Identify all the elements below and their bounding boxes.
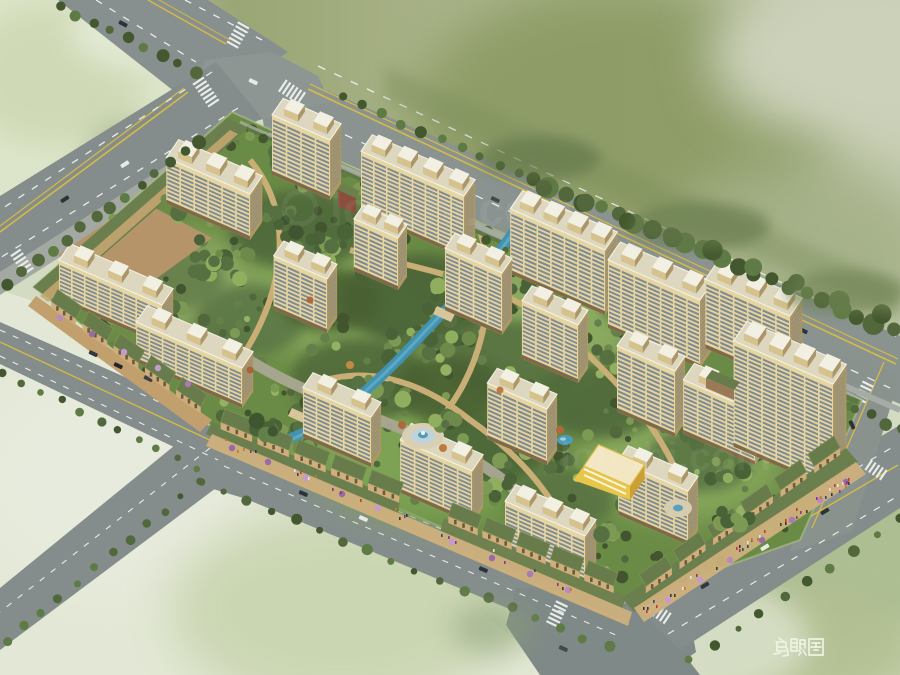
svg-text:loushi.com: loushi.com [330, 183, 573, 235]
svg-text:loushi.com: loushi.com [560, 435, 771, 479]
